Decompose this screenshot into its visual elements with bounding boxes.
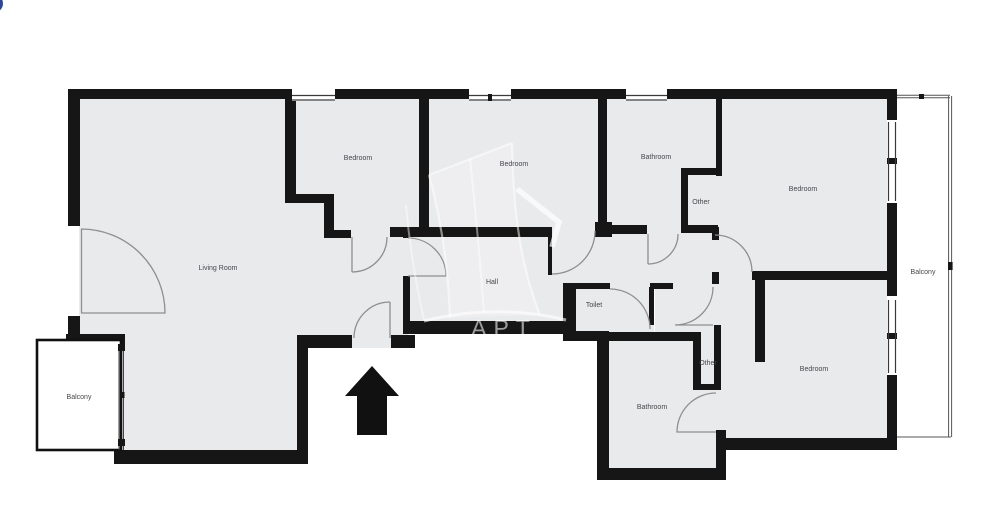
svg-text:Bathroom: Bathroom — [637, 404, 668, 411]
svg-text:Balcony: Balcony — [911, 269, 936, 276]
svg-text:Hall: Hall — [486, 279, 499, 286]
svg-text:Balcony: Balcony — [67, 394, 92, 401]
svg-text:Bedroom: Bedroom — [500, 161, 529, 168]
svg-text:Other: Other — [699, 360, 717, 367]
svg-text:Bedroom: Bedroom — [800, 366, 829, 373]
svg-text:Other: Other — [692, 199, 710, 206]
svg-text:Bathroom: Bathroom — [641, 154, 672, 161]
svg-text:Bedroom: Bedroom — [789, 186, 818, 193]
svg-text:APT: APT — [471, 315, 537, 341]
svg-text:Living Room: Living Room — [199, 265, 238, 272]
svg-text:Toilet: Toilet — [586, 302, 602, 309]
svg-text:Bedroom: Bedroom — [344, 155, 373, 162]
